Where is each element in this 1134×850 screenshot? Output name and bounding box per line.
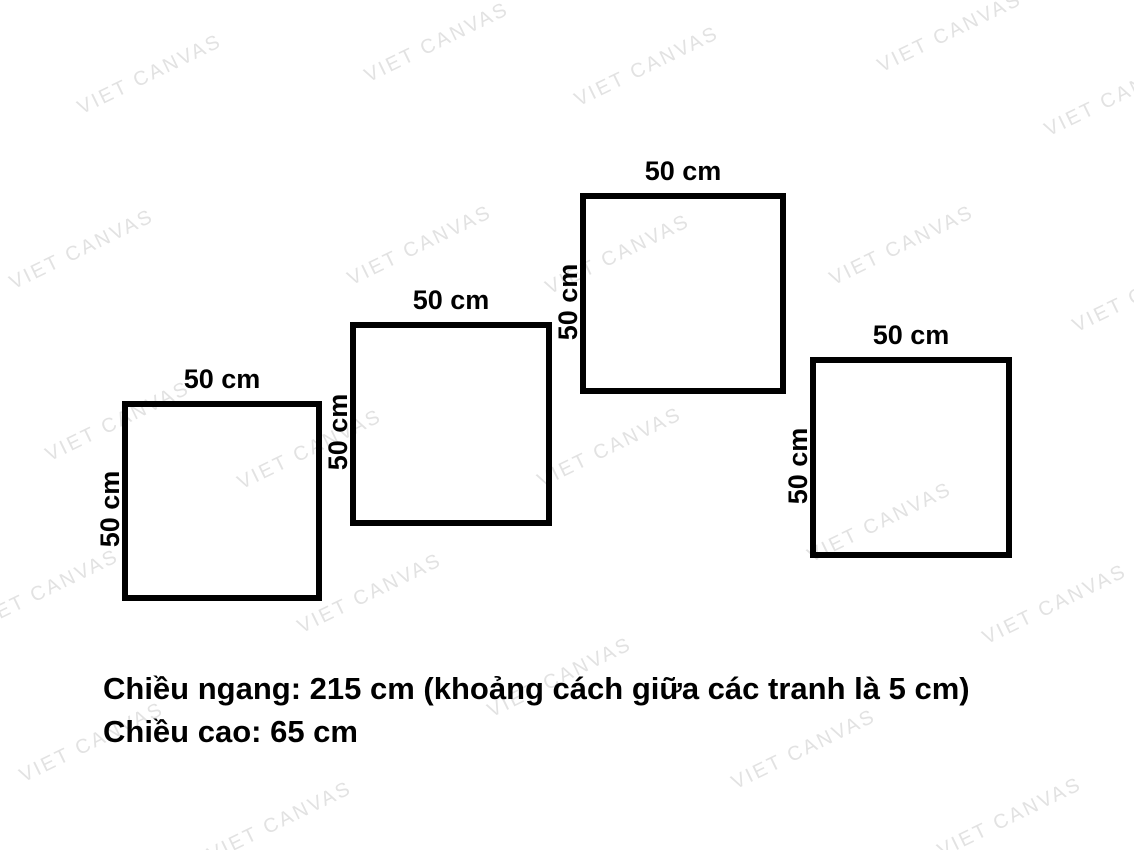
frame-height-label: 50 cm [323, 394, 353, 471]
watermark-text: VIET CANVAS [361, 0, 513, 88]
dimension-notes: Chiều ngang: 215 cm (khoảng cách giữa cá… [103, 667, 970, 753]
watermark-text: VIET CANVAS [874, 0, 1026, 78]
watermark-text: VIET CANVAS [0, 545, 123, 635]
frame-height-label: 50 cm [95, 471, 125, 548]
watermark-text: VIET CANVAS [6, 205, 158, 295]
frame-width-label: 50 cm [873, 320, 950, 350]
frame-width-label: 50 cm [184, 364, 261, 394]
canvas-frame [122, 401, 322, 601]
canvas-frame [350, 322, 552, 526]
watermark-text: VIET CANVAS [934, 773, 1086, 850]
watermark-text: VIET CANVAS [826, 201, 978, 291]
watermark-text: VIET CANVAS [534, 403, 686, 493]
frame-width-label: 50 cm [645, 156, 722, 186]
watermark-text: VIET CANVAS [344, 201, 496, 291]
watermark-text: VIET CANVAS [571, 22, 723, 112]
total-height-note: Chiều cao: 65 cm [103, 710, 970, 753]
watermark-text: VIET CANVAS [979, 560, 1131, 650]
frame-width-label: 50 cm [413, 285, 490, 315]
frame-height-label: 50 cm [553, 263, 583, 340]
watermark-text: VIET CANVAS [1041, 52, 1134, 142]
watermark-text: VIET CANVAS [1069, 248, 1134, 338]
watermark-text: VIET CANVAS [204, 777, 356, 850]
canvas-frame [810, 357, 1012, 558]
total-width-note: Chiều ngang: 215 cm (khoảng cách giữa cá… [103, 667, 970, 710]
frame-height-label: 50 cm [783, 427, 813, 504]
dimension-diagram: Chiều ngang: 215 cm (khoảng cách giữa cá… [0, 0, 1134, 850]
watermark-text: VIET CANVAS [74, 30, 226, 120]
canvas-frame [580, 193, 786, 394]
